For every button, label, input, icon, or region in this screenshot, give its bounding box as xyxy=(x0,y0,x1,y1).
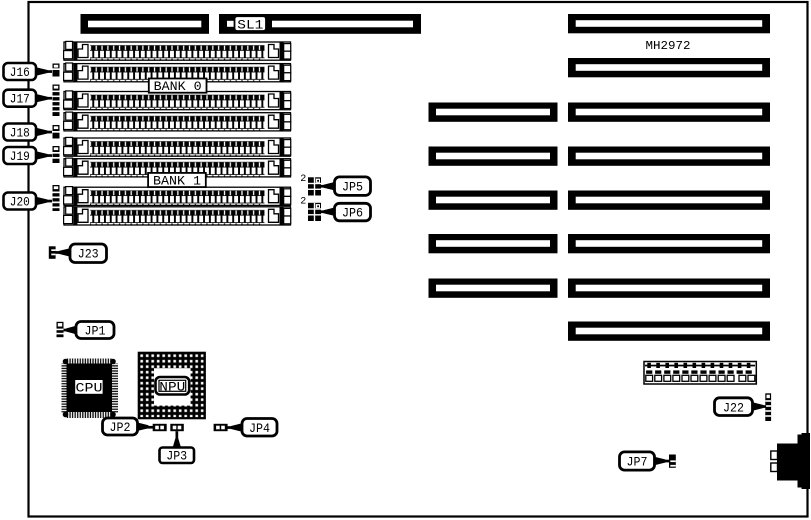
svg-text:J22: J22 xyxy=(723,400,744,415)
svg-text:2: 2 xyxy=(300,174,306,185)
svg-text:BANK 0: BANK 0 xyxy=(154,79,202,94)
svg-text:SL1: SL1 xyxy=(237,17,263,32)
svg-text:J16: J16 xyxy=(10,65,30,80)
svg-text:J18: J18 xyxy=(10,126,30,141)
svg-text:JP3: JP3 xyxy=(166,449,187,464)
svg-text:JP6: JP6 xyxy=(342,205,363,220)
svg-text:J20: J20 xyxy=(10,195,30,210)
svg-text:JP1: JP1 xyxy=(85,324,106,339)
svg-text:MH2972: MH2972 xyxy=(646,40,691,53)
svg-text:JP5: JP5 xyxy=(342,180,363,195)
svg-text:JP7: JP7 xyxy=(627,455,648,470)
svg-text:2: 2 xyxy=(300,196,306,207)
svg-text:CPU: CPU xyxy=(76,380,103,395)
svg-text:BANK 1: BANK 1 xyxy=(153,174,201,189)
svg-text:J23: J23 xyxy=(78,247,99,262)
svg-text:J17: J17 xyxy=(10,92,30,107)
svg-text:J19: J19 xyxy=(10,149,30,164)
svg-text:JP2: JP2 xyxy=(110,420,131,435)
svg-text:JP4: JP4 xyxy=(249,421,270,436)
svg-text:NPU: NPU xyxy=(159,380,185,395)
